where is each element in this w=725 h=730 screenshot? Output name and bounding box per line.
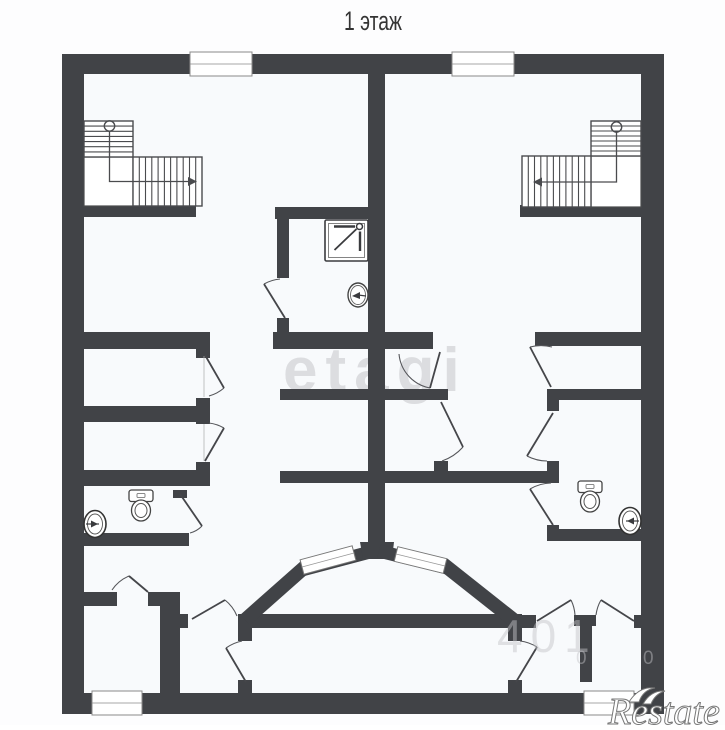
svg-text:Restate: Restate [607,691,720,725]
svg-text:0: 0 [576,648,587,669]
svg-text:0: 0 [643,648,654,669]
svg-text:1 этаж: 1 этаж [344,6,402,36]
